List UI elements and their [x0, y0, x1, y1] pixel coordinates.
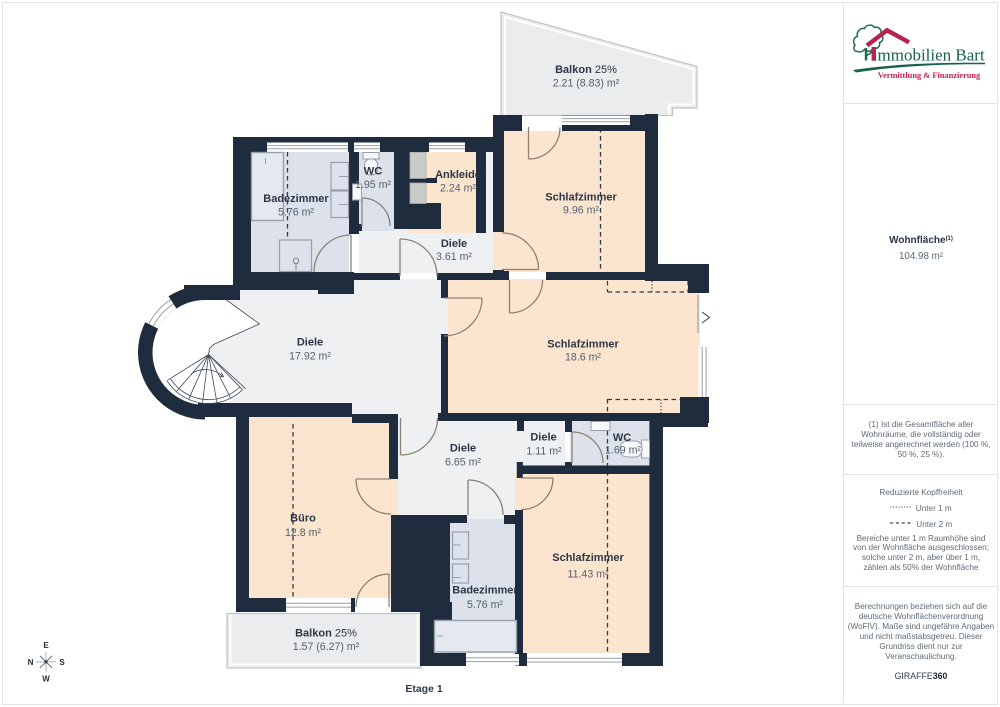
svg-text:E: E: [43, 641, 49, 650]
svg-text:2.21 (8.83) m²: 2.21 (8.83) m²: [553, 78, 620, 90]
svg-text:6.65 m²: 6.65 m²: [445, 457, 481, 469]
svg-text:11.43 m²: 11.43 m²: [567, 569, 608, 581]
svg-text:Büro: Büro: [290, 513, 316, 525]
svg-text:1.57 (6.27) m²: 1.57 (6.27) m²: [293, 641, 360, 653]
svg-text:5.76 m²: 5.76 m²: [278, 207, 314, 219]
svg-text:Schlafzimmer: Schlafzimmer: [552, 552, 624, 564]
svg-text:WC: WC: [613, 432, 631, 444]
svg-text:mmobilien Bart: mmobilien Bart: [878, 46, 985, 65]
svg-text:17.92 m²: 17.92 m²: [289, 351, 331, 363]
svg-text:Diele: Diele: [530, 432, 556, 444]
svg-text:Diele: Diele: [441, 238, 467, 250]
svg-text:5.76 m²: 5.76 m²: [467, 599, 503, 611]
svg-text:Vermittlung & Finanzierung: Vermittlung & Finanzierung: [878, 71, 981, 80]
svg-text:12.8 m²: 12.8 m²: [285, 527, 321, 539]
svg-text:9.96 m²: 9.96 m²: [563, 205, 599, 217]
svg-text:2.24 m²: 2.24 m²: [440, 183, 476, 195]
svg-text:Diele: Diele: [297, 337, 323, 349]
svg-text:18.6 m²: 18.6 m²: [565, 352, 601, 364]
svg-text:W: W: [42, 675, 50, 684]
svg-text:Diele: Diele: [450, 443, 476, 455]
svg-text:1.69 m²: 1.69 m²: [605, 445, 641, 457]
svg-text:Schlafzimmer: Schlafzimmer: [547, 339, 619, 351]
svg-text:S: S: [59, 658, 65, 667]
svg-text:Badezimmer: Badezimmer: [263, 193, 329, 205]
svg-text:Ankleide: Ankleide: [435, 169, 481, 181]
svg-text:N: N: [28, 658, 34, 667]
svg-text:Schlafzimmer: Schlafzimmer: [545, 192, 617, 204]
svg-text:WC: WC: [364, 166, 382, 178]
svg-text:Balkon 25%: Balkon 25%: [555, 64, 617, 76]
svg-text:Badezimmer: Badezimmer: [452, 585, 518, 597]
svg-text:1.95 m²: 1.95 m²: [355, 179, 391, 191]
svg-text:1.11 m²: 1.11 m²: [526, 446, 562, 458]
svg-text:3.61 m²: 3.61 m²: [436, 251, 472, 263]
svg-text:Balkon 25%: Balkon 25%: [295, 628, 357, 640]
